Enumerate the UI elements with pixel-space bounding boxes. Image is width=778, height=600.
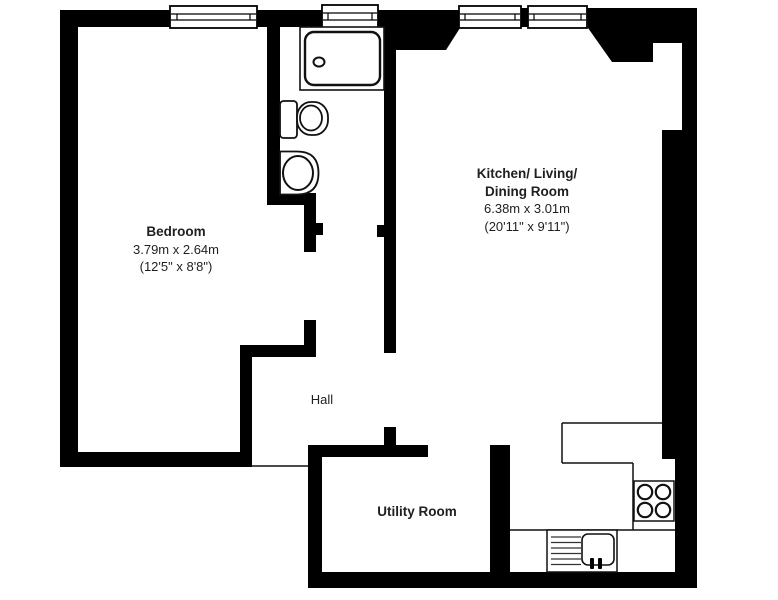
top-wall-mid (255, 10, 324, 27)
kitchen-partition-wall (384, 24, 396, 353)
bedroom-door-wall-upper (304, 205, 316, 252)
hob (634, 481, 674, 521)
kitchen-name-line2: Dining Room (427, 183, 627, 201)
tap (590, 558, 594, 569)
shower-tray (300, 27, 384, 90)
bedroom-bathroom-wall (267, 24, 280, 198)
utility-west-wall (308, 445, 322, 573)
right-wall-lower (675, 459, 697, 588)
top-wall-right-chamfer (587, 8, 697, 62)
kitchen-living-dining-label: Kitchen/ Living/ Dining Room 6.38m x 3.0… (427, 165, 627, 235)
kitchen-window-2 (528, 6, 587, 28)
utility-room-label: Utility Room (337, 503, 497, 521)
bedroom-dim-imperial: (12'5" x 8'8") (76, 258, 276, 276)
kitchen-sink (547, 530, 617, 572)
hall-name: Hall (292, 391, 352, 409)
tap (598, 558, 602, 569)
toilet (280, 101, 328, 138)
kitchen-dim-imperial: (20'11" x 9'11") (427, 218, 627, 236)
bathroom-window (322, 5, 378, 28)
top-wall-bedroom (60, 10, 172, 27)
walls (60, 8, 697, 588)
hall-label: Hall (292, 391, 352, 409)
bathroom-door-jamb-left (316, 223, 323, 235)
utility-north-wall (308, 445, 428, 457)
kitchen-dim-metric: 6.38m x 3.01m (427, 200, 627, 218)
kitchen-name-line1: Kitchen/ Living/ (427, 165, 627, 183)
bedroom-door-jamb-lower (304, 320, 316, 345)
right-wall-recessed (682, 43, 697, 130)
kitchen-window-1 (459, 6, 521, 28)
bottom-wall (308, 572, 697, 588)
kitchen-opening-jamb (384, 427, 396, 445)
bedroom-dim-metric: 3.79m x 2.64m (76, 241, 276, 259)
bedroom-name: Bedroom (76, 223, 276, 241)
bedroom-east-wall (240, 345, 252, 452)
right-wall-main (662, 130, 697, 459)
bedroom-bottom-wall (60, 452, 252, 467)
floor-plan: Bedroom 3.79m x 2.64m (12'5" x 8'8") Kit… (0, 0, 778, 600)
bathroom-door-jamb-right (377, 225, 384, 237)
bedroom-label: Bedroom 3.79m x 2.64m (12'5" x 8'8") (76, 223, 276, 276)
wash-basin (280, 152, 319, 195)
utility-name: Utility Room (337, 503, 497, 521)
bedroom-window (170, 6, 257, 28)
